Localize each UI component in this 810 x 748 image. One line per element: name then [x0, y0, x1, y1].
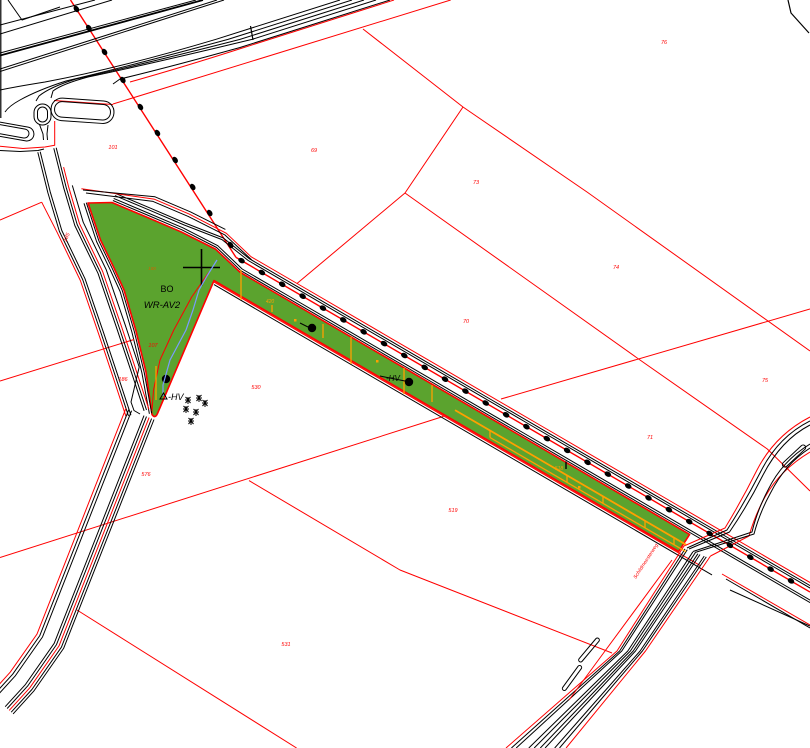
svg-text:530: 530	[251, 385, 261, 391]
svg-text:531: 531	[281, 642, 290, 648]
svg-text:76: 76	[661, 40, 668, 46]
svg-text:-HV: -HV	[168, 392, 184, 402]
svg-text:75: 75	[762, 378, 769, 384]
svg-text:101: 101	[108, 145, 117, 151]
svg-text:100: 100	[148, 266, 156, 271]
svg-text:420: 420	[266, 299, 275, 305]
svg-text:74: 74	[613, 265, 619, 271]
svg-text:70: 70	[463, 319, 470, 325]
svg-text:69: 69	[311, 148, 317, 154]
svg-text:107: 107	[148, 343, 158, 349]
svg-text:BO: BO	[160, 284, 173, 294]
svg-text:73: 73	[473, 180, 480, 186]
svg-text:519: 519	[448, 508, 457, 514]
svg-text:71: 71	[647, 435, 653, 441]
svg-text:576: 576	[141, 472, 151, 478]
svg-text:WR-AV2: WR-AV2	[144, 300, 181, 311]
svg-text:186: 186	[118, 377, 128, 383]
svg-text:-HV: -HV	[386, 374, 400, 383]
svg-text:518: 518	[555, 466, 564, 472]
